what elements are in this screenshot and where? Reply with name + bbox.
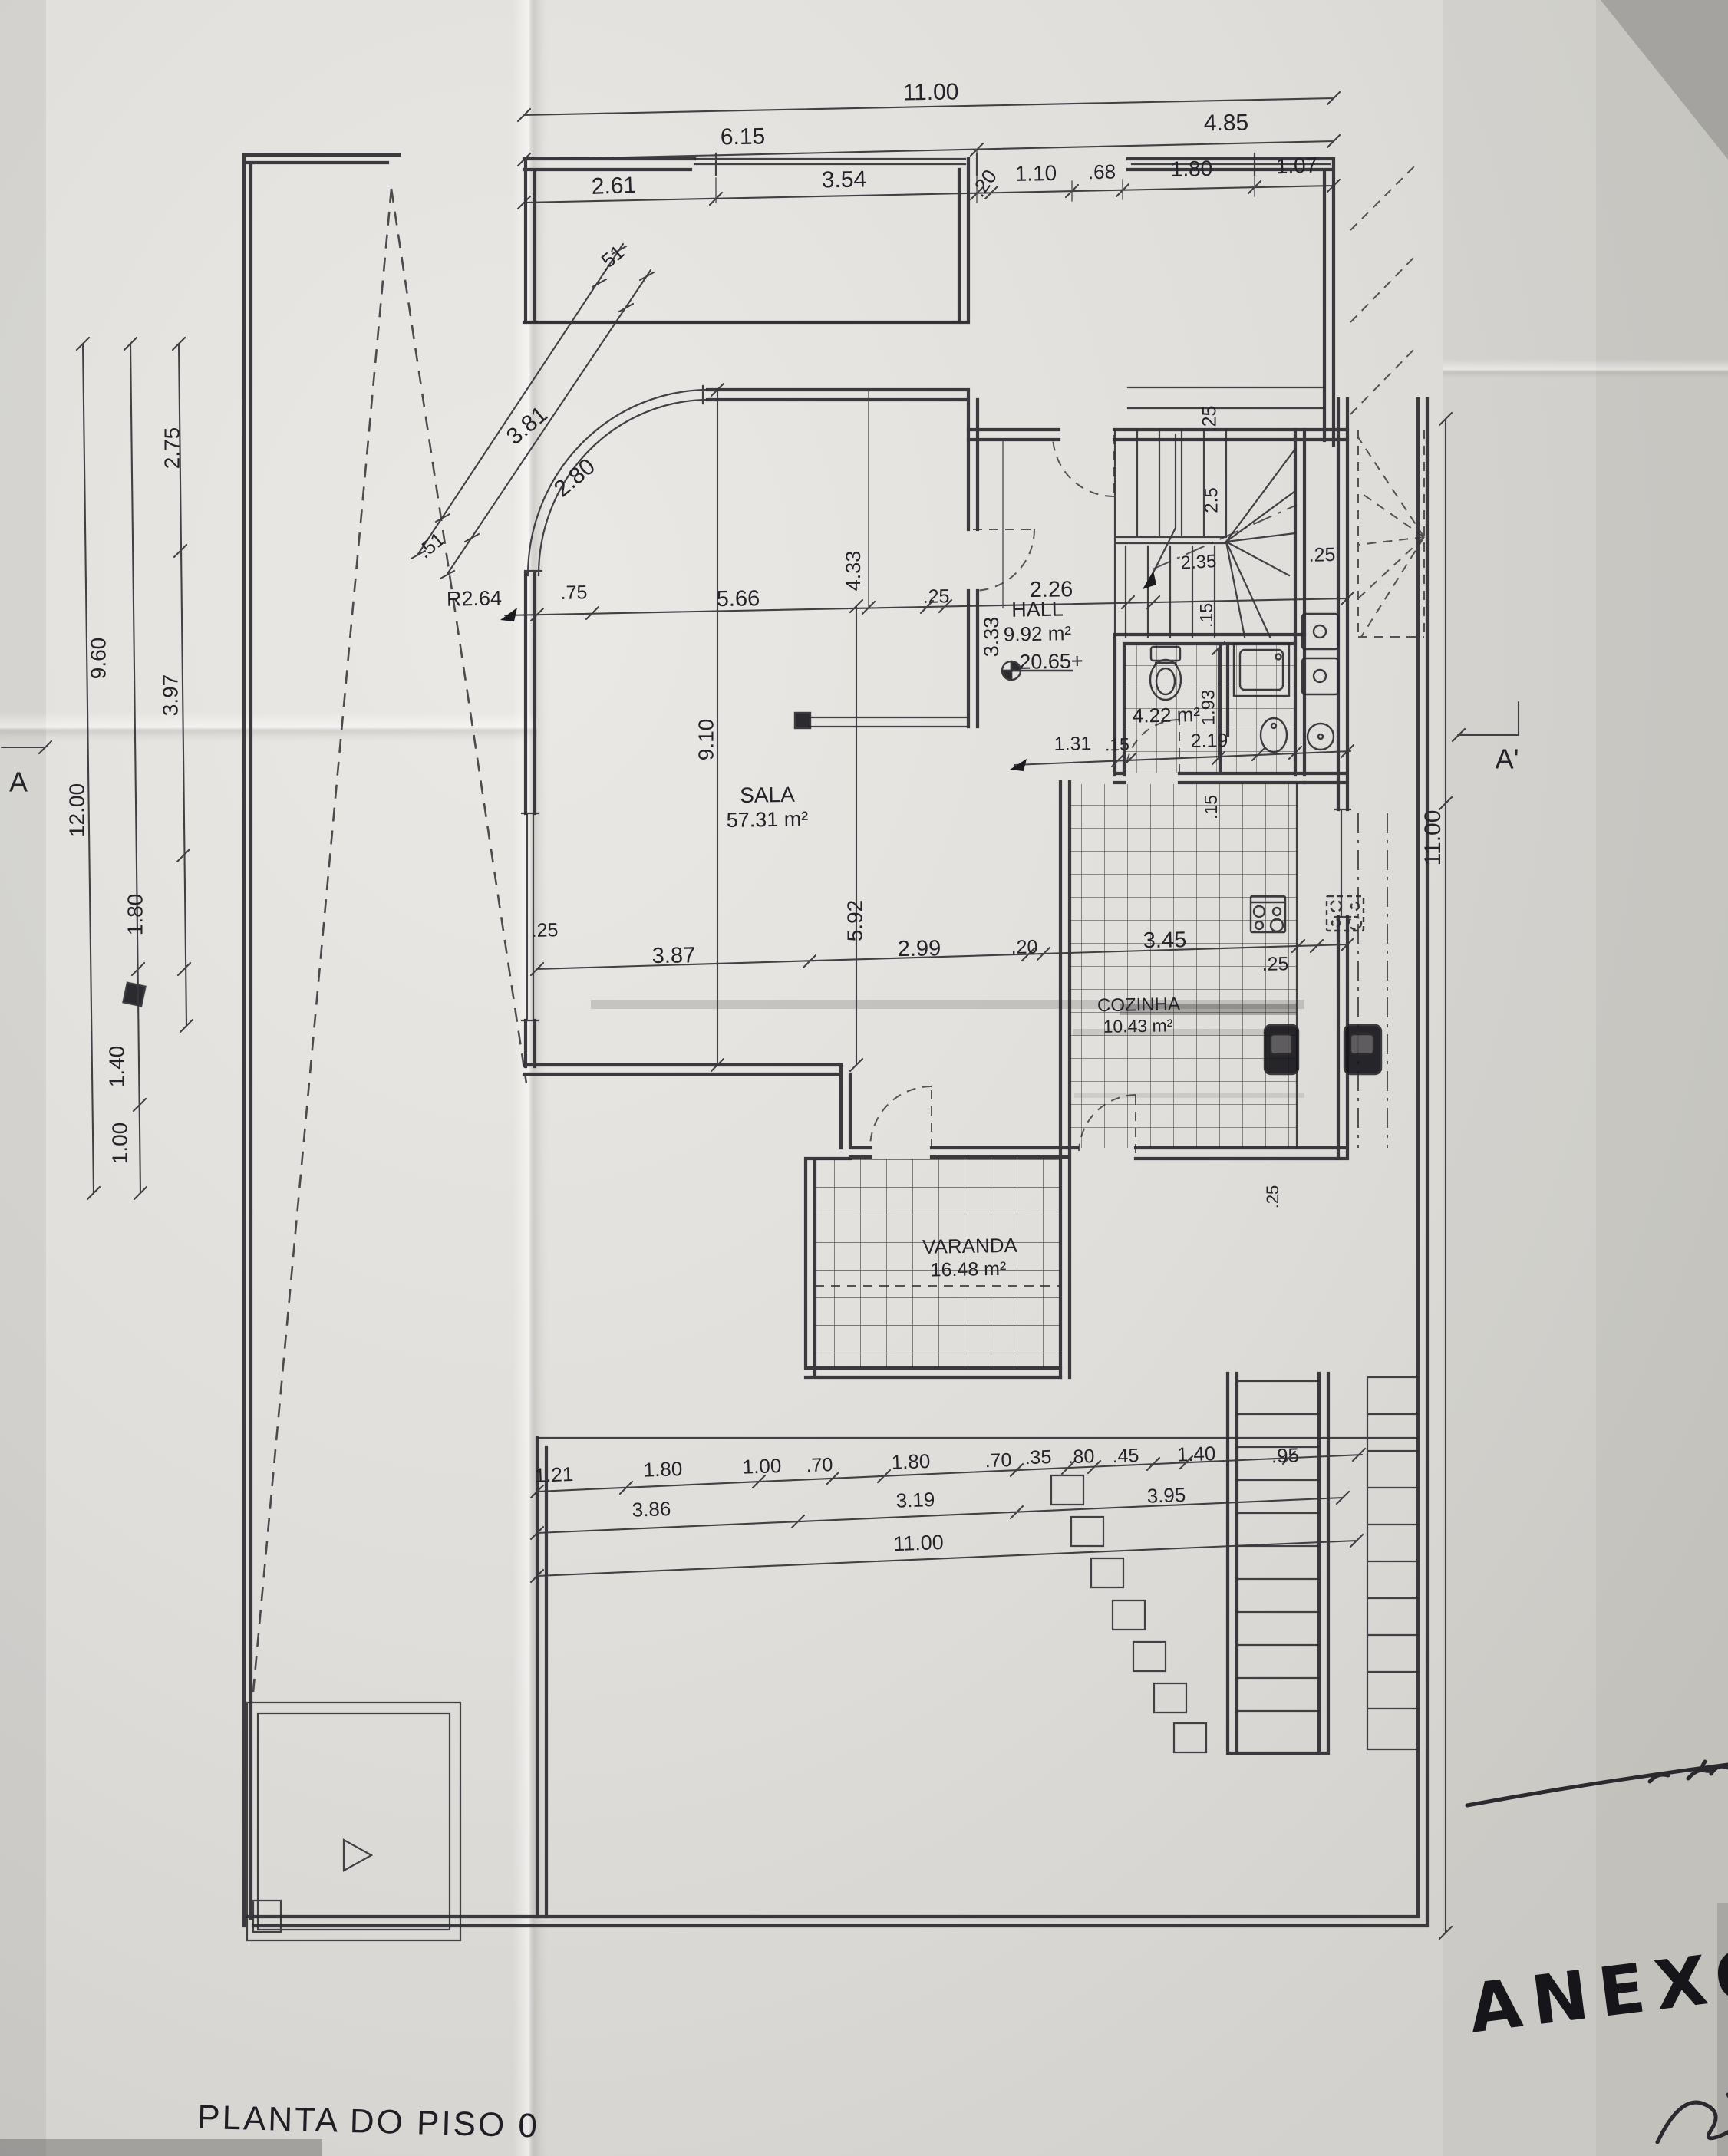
dim-0-35: .35 xyxy=(1024,1446,1052,1469)
dim-3-86: 3.86 xyxy=(632,1497,671,1521)
dim-1-80-b2: 1.80 xyxy=(891,1449,931,1474)
dim-1-00-b: 1.00 xyxy=(742,1454,782,1479)
dim-1-40-left: 1.40 xyxy=(104,1046,128,1088)
room-hall-area: 9.92 m² xyxy=(1004,621,1072,646)
room-cozinha-area: 10.43 m² xyxy=(1103,1015,1173,1037)
dim-0-25-stair-right: .25 xyxy=(1308,544,1335,566)
dim-3-19: 3.19 xyxy=(895,1488,935,1512)
dim-0-20-mid: .20 xyxy=(1011,936,1037,958)
section-a: A xyxy=(9,766,28,798)
dim-1-00-left: 1.00 xyxy=(107,1123,131,1165)
dim-3-45: 3.45 xyxy=(1143,928,1186,953)
dim-0-70-a: .70 xyxy=(806,1454,833,1476)
dim-3-33: 3.33 xyxy=(980,617,1003,658)
dim-1-21: 1.21 xyxy=(534,1462,574,1487)
dim-0-25-c: .25 xyxy=(1261,953,1288,975)
room-varanda: VARANDA xyxy=(922,1234,1018,1258)
room-hall: HALL xyxy=(1011,598,1064,621)
dim-3-97: 3.97 xyxy=(158,674,182,717)
dim-2-75: 2.75 xyxy=(160,427,183,470)
dim-0-68: .68 xyxy=(1088,160,1116,184)
dim-0-75: .75 xyxy=(560,582,587,604)
dim-1-31: 1.31 xyxy=(1054,733,1091,755)
dim-0-25-b: .25 xyxy=(531,919,558,941)
dim-3-95: 3.95 xyxy=(1146,1483,1186,1508)
dim-0-95: .95 xyxy=(1271,1443,1299,1467)
dim-0-15-a: .15 xyxy=(1196,603,1216,628)
dim-1-80-left: 1.80 xyxy=(123,894,147,936)
scanned-floor-plan-photo: 11.006.154.852.613.54.201.10.681.801.073… xyxy=(0,0,1728,2156)
dim-0-25-d: .25 xyxy=(1263,1185,1282,1209)
dim-0-45: .45 xyxy=(1112,1445,1139,1467)
dim-0-15-b: .15 xyxy=(1201,795,1221,819)
room-sala-area: 57.31 m² xyxy=(726,807,808,832)
dim-0-15-c: .15 xyxy=(1105,734,1129,755)
dim-0-70-b: .70 xyxy=(984,1449,1012,1472)
section-a-prime: A' xyxy=(1496,743,1519,775)
dim-3-54: 3.54 xyxy=(821,166,866,193)
dim-6-15: 6.15 xyxy=(720,124,765,150)
dim-4-85: 4.85 xyxy=(1203,110,1248,136)
dim-11-00-bottom: 11.00 xyxy=(893,1531,945,1555)
dim-1-40-b: 1.40 xyxy=(1176,1442,1216,1466)
dim-2-99: 2.99 xyxy=(897,936,941,961)
dim-9-10: 9.10 xyxy=(694,719,717,761)
room-wc-area: 4.22 m² xyxy=(1133,703,1201,727)
dim-9-60: 9.60 xyxy=(86,638,110,680)
dim-5-66: 5.66 xyxy=(716,586,760,612)
dim-2-35-stair: 2.35 xyxy=(1180,551,1217,573)
dim-1-10: 1.10 xyxy=(1014,161,1057,186)
dim-1-80-top: 1.80 xyxy=(1170,157,1212,181)
dim-5-92: 5.92 xyxy=(843,900,866,942)
room-sala: SALA xyxy=(740,783,795,807)
dim-0-80: .80 xyxy=(1067,1446,1095,1468)
dim-2-5-stair: 2.5 xyxy=(1201,487,1222,513)
floor-plan-drawing: 11.006.154.852.613.54.201.10.681.801.073… xyxy=(0,0,1728,2156)
dim-12-00: 12.00 xyxy=(64,783,88,837)
room-cozinha: COZINHA xyxy=(1097,994,1180,1016)
dim-4-33: 4.33 xyxy=(842,551,865,592)
dim-1-93: 1.93 xyxy=(1198,690,1219,726)
dim-2-61: 2.61 xyxy=(591,173,637,199)
level-20-65: 20.65+ xyxy=(1019,649,1083,673)
dim-0-25-stair-top: .25 xyxy=(1199,406,1221,433)
dim-11-00-right: 11.00 xyxy=(1420,810,1446,866)
dim-11-00-top: 11.00 xyxy=(902,79,958,105)
room-varanda-area: 16.48 m² xyxy=(930,1258,1006,1281)
dim-3-87: 3.87 xyxy=(651,943,695,968)
dim-2-19: 2.19 xyxy=(1190,730,1228,752)
left-dim-blob xyxy=(124,983,146,1006)
dim-1-80-b1: 1.80 xyxy=(643,1457,683,1482)
dim-1-07: 1.07 xyxy=(1275,153,1318,178)
sala-column xyxy=(795,713,810,728)
dim-r2-64: R2.64 xyxy=(447,586,503,610)
dim-0-25-a: .25 xyxy=(922,585,949,608)
fold-crease-horizontal xyxy=(0,712,537,746)
